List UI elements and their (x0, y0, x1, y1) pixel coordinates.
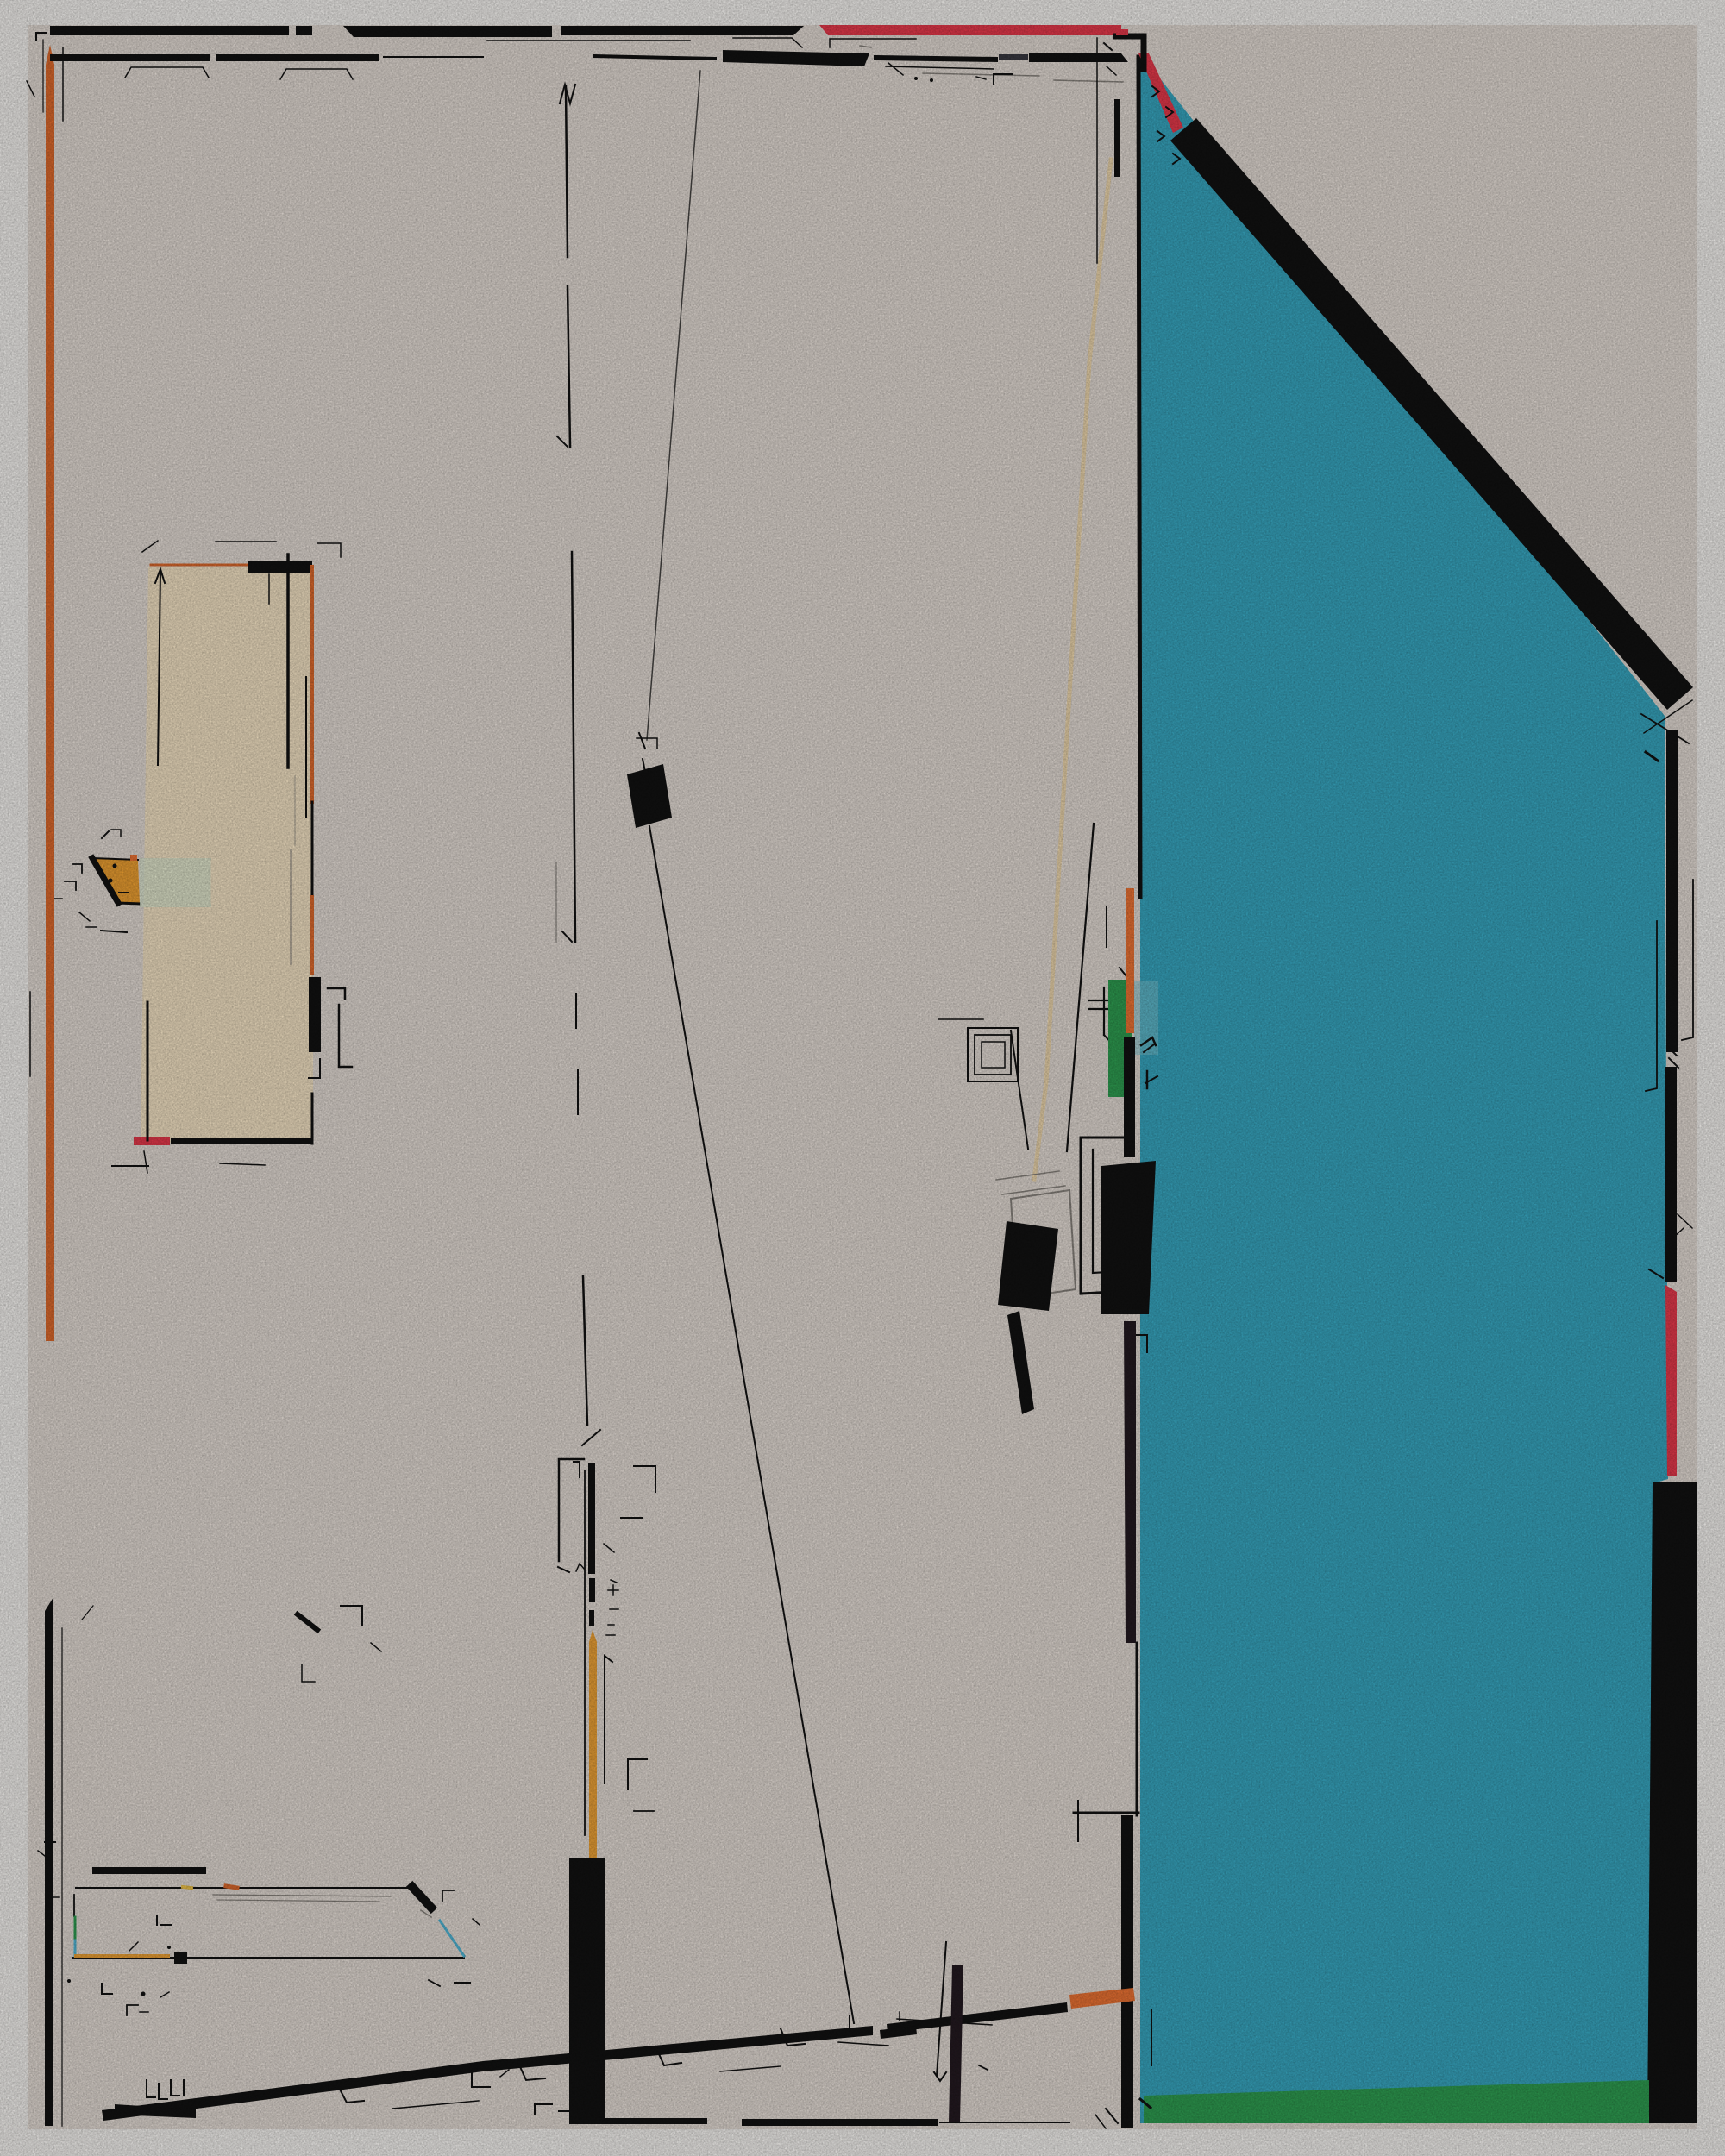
artwork-drawing (0, 0, 1725, 2156)
grain-overlay (0, 0, 1725, 2156)
artwork-canvas (0, 0, 1725, 2156)
